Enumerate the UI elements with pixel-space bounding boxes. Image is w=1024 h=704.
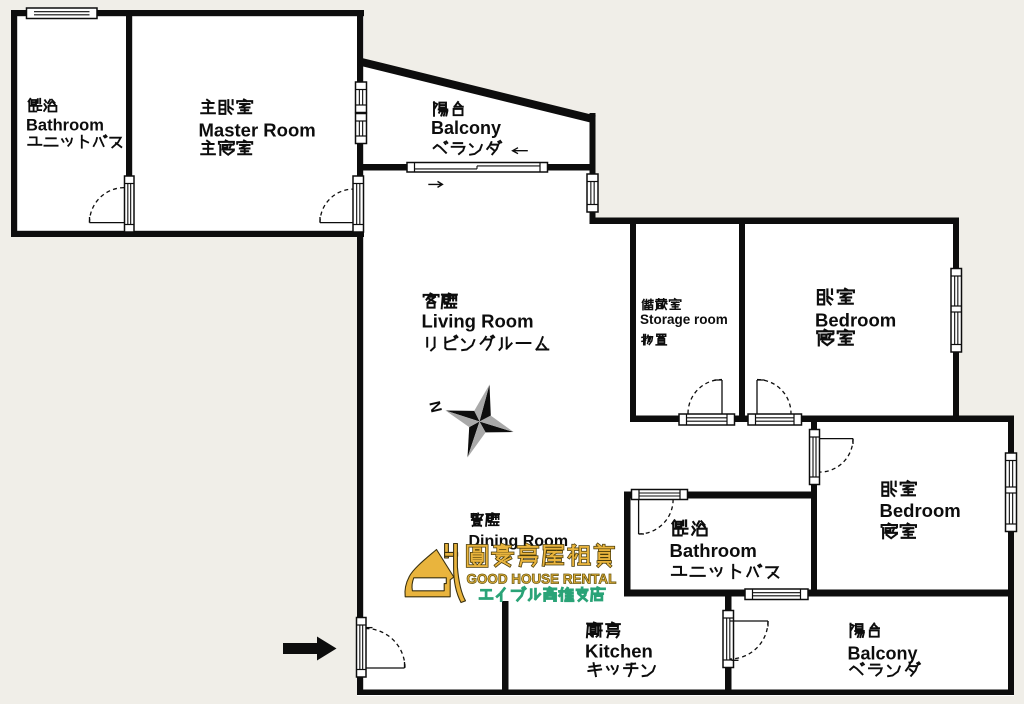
svg-text:Balcony: Balcony <box>848 643 918 663</box>
svg-text:Master Room: Master Room <box>199 120 316 141</box>
svg-text:Bedroom: Bedroom <box>880 500 961 521</box>
svg-text:Bathroom: Bathroom <box>670 540 757 561</box>
svg-text:Storage room: Storage room <box>640 312 728 327</box>
svg-text:Balcony: Balcony <box>431 118 501 138</box>
svg-text:Kitchen: Kitchen <box>585 640 653 661</box>
svg-text:GOOD HOUSE RENTAL: GOOD HOUSE RENTAL <box>467 572 617 587</box>
svg-text:Living Room: Living Room <box>422 311 534 332</box>
svg-text:Bedroom: Bedroom <box>815 310 896 331</box>
svg-text:Bathroom: Bathroom <box>26 117 104 135</box>
